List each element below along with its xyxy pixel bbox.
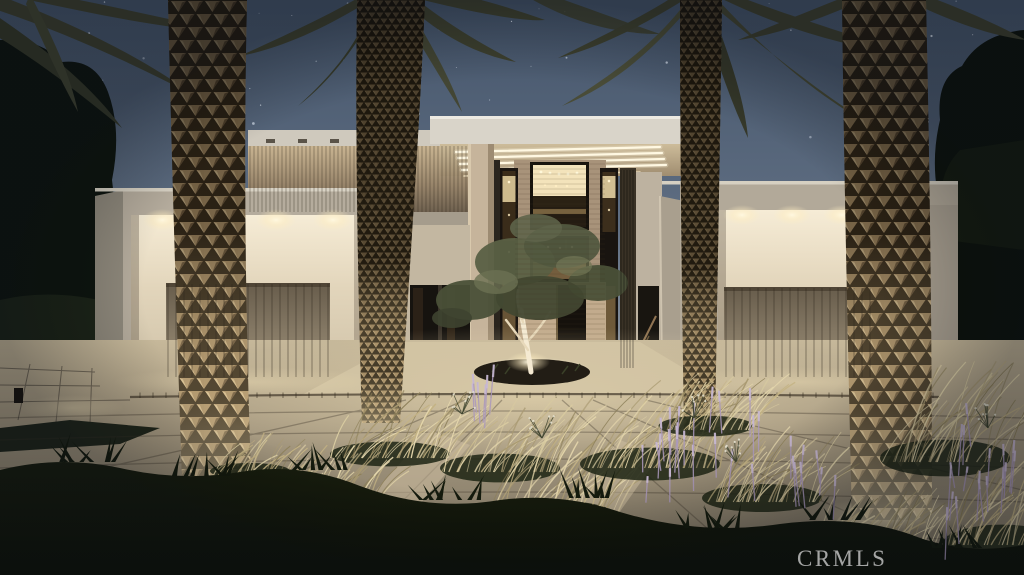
vignette [0,0,1024,575]
watermark-text: CRMLS [797,546,887,571]
dusk-home-rendering: CRMLS [0,0,1024,575]
